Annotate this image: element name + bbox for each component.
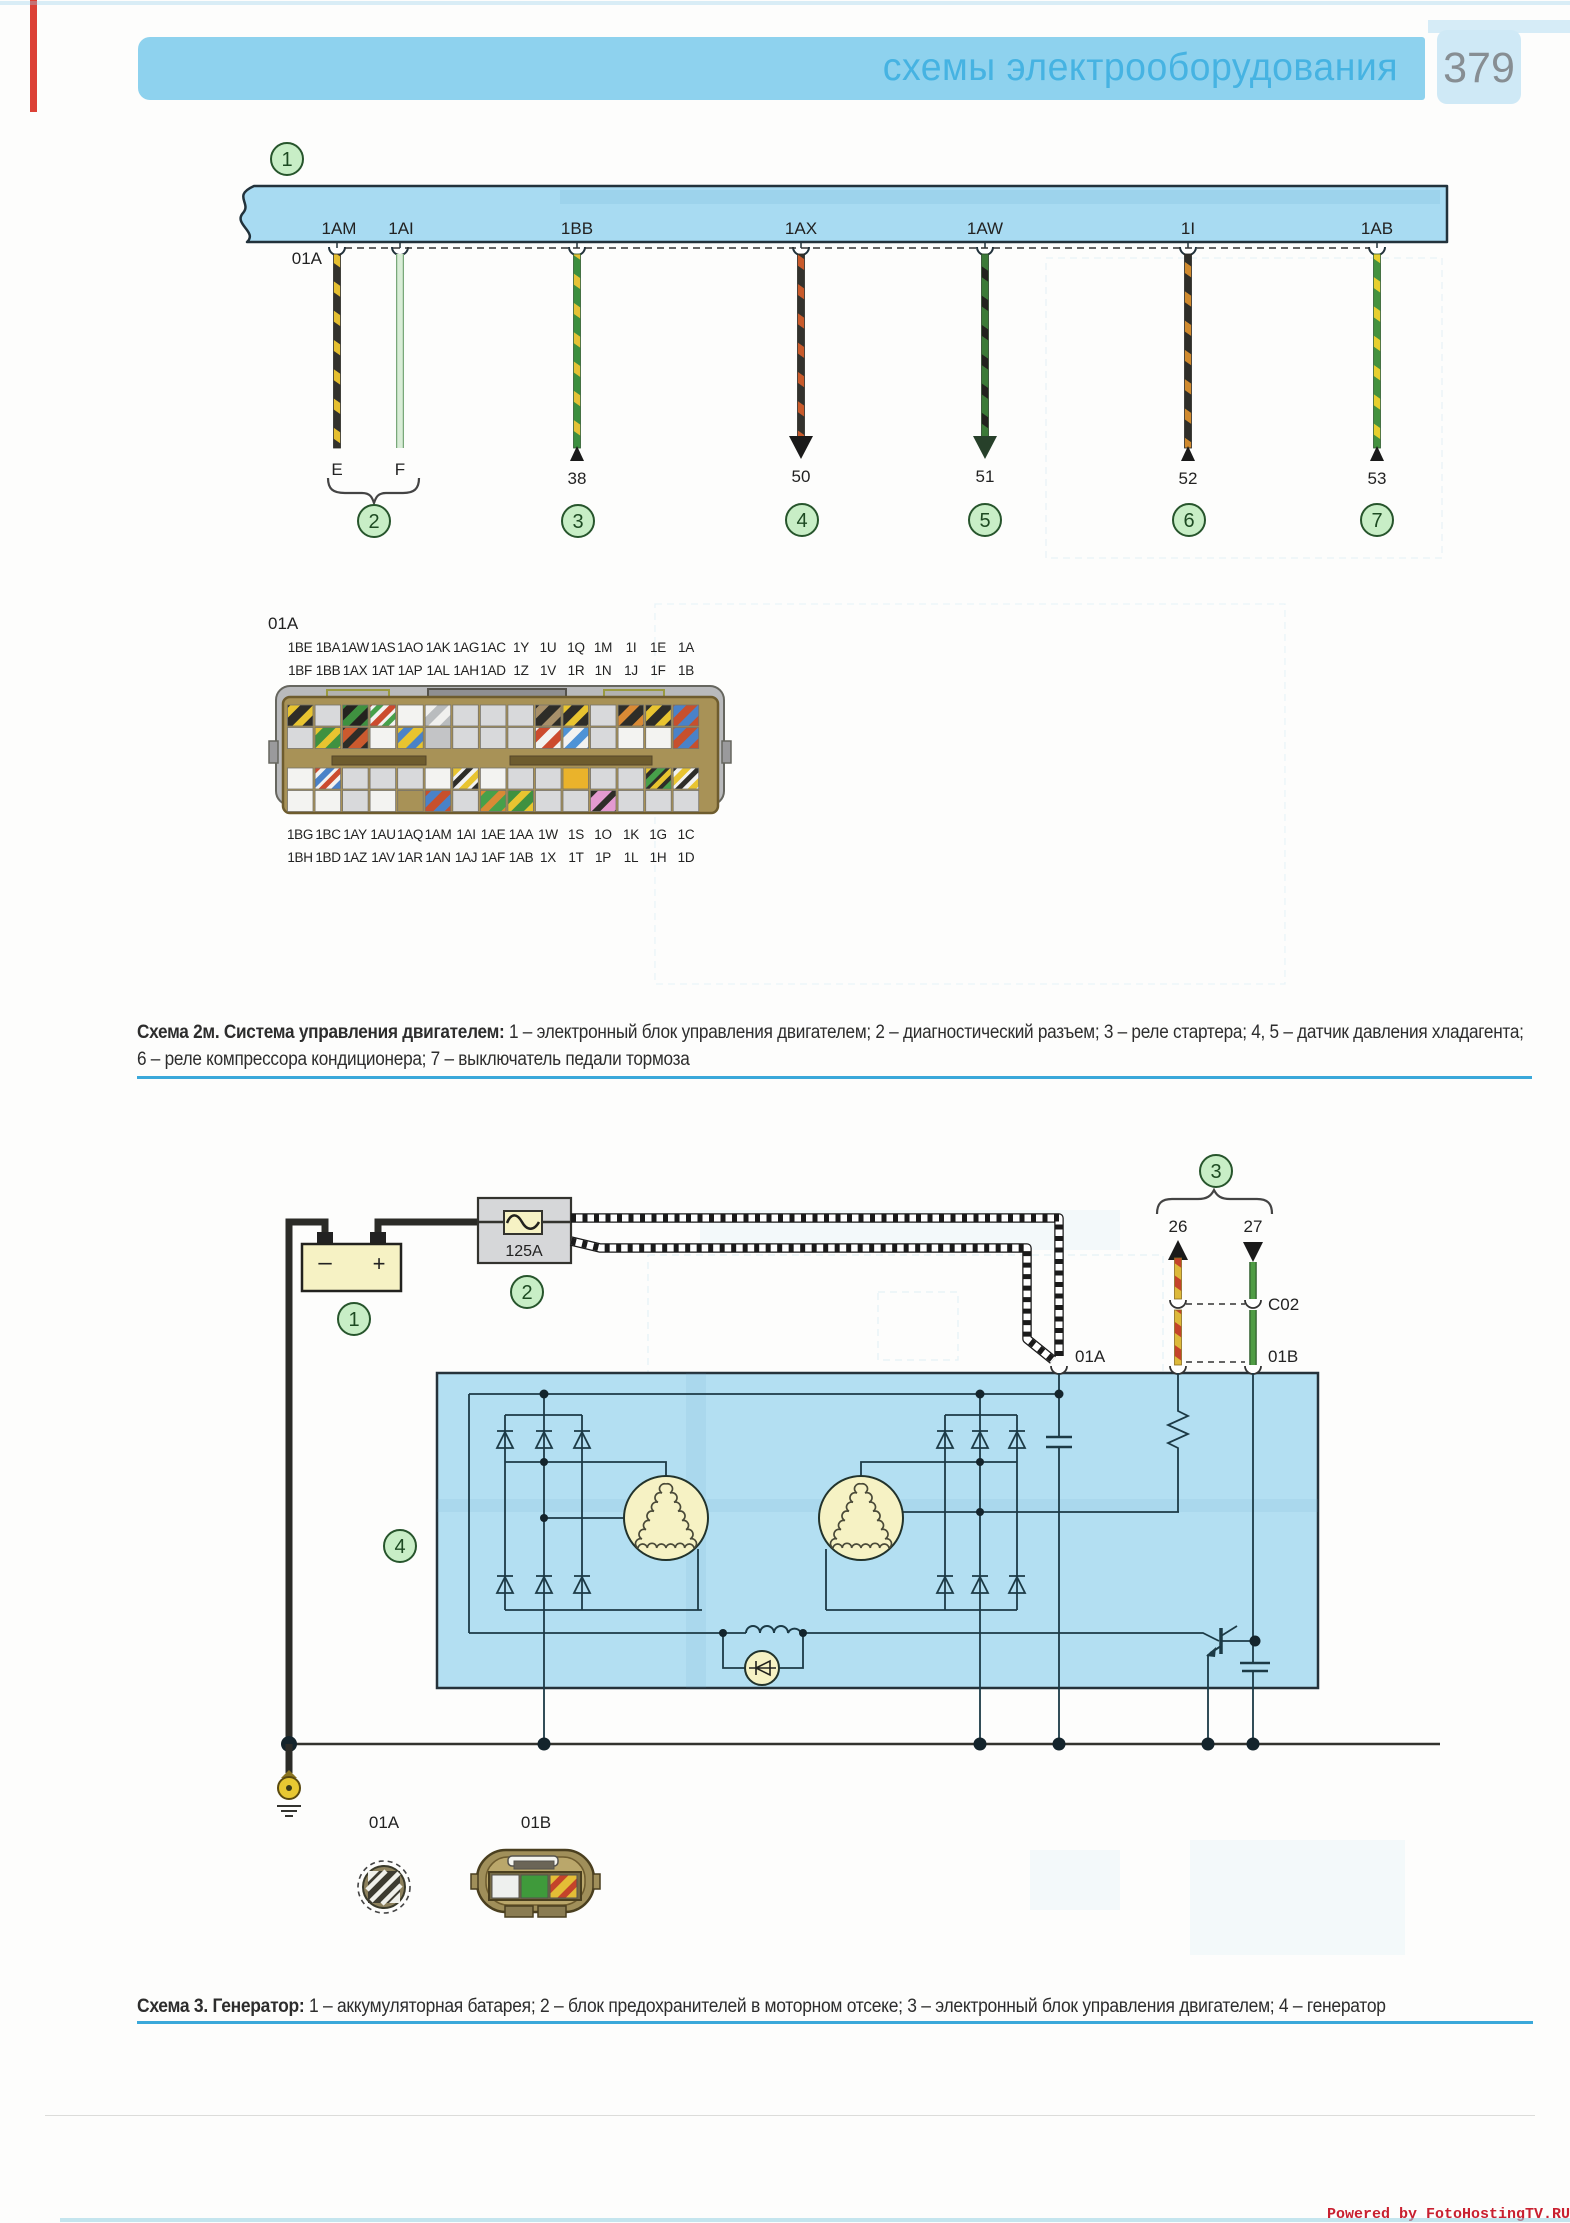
svg-text:1BG: 1BG (287, 827, 313, 842)
svg-text:1AX: 1AX (343, 663, 368, 678)
svg-text:1BH: 1BH (287, 850, 312, 865)
svg-text:C02: C02 (1268, 1295, 1299, 1314)
svg-text:1AW: 1AW (341, 640, 369, 655)
svg-text:1U: 1U (540, 640, 557, 655)
svg-text:1A: 1A (678, 640, 694, 655)
svg-text:1W: 1W (538, 827, 558, 842)
svg-text:01A: 01A (369, 1813, 400, 1832)
svg-text:1AM: 1AM (322, 219, 357, 238)
svg-text:1AH: 1AH (453, 663, 478, 678)
svg-text:1AL: 1AL (426, 663, 450, 678)
svg-text:1AO: 1AO (397, 640, 423, 655)
svg-text:1BD: 1BD (315, 850, 341, 865)
svg-text:1I: 1I (1181, 219, 1195, 238)
svg-text:53: 53 (1368, 469, 1387, 488)
svg-text:1AZ: 1AZ (343, 850, 367, 865)
svg-text:1AE: 1AE (481, 827, 506, 842)
svg-text:38: 38 (568, 469, 587, 488)
svg-text:125A: 125A (505, 1243, 543, 1260)
svg-text:1AV: 1AV (371, 850, 395, 865)
svg-text:1T: 1T (568, 850, 583, 865)
svg-text:E: E (331, 460, 342, 479)
svg-text:1AW: 1AW (967, 219, 1003, 238)
svg-text:1V: 1V (540, 663, 556, 678)
svg-text:1BA: 1BA (316, 640, 341, 655)
svg-text:1AA: 1AA (509, 827, 534, 842)
svg-text:52: 52 (1179, 469, 1198, 488)
svg-text:1AD: 1AD (480, 663, 506, 678)
svg-text:26: 26 (1169, 1217, 1188, 1236)
svg-text:1B: 1B (678, 663, 694, 678)
svg-text:1Y: 1Y (513, 640, 529, 655)
svg-text:01A: 01A (292, 249, 323, 268)
svg-text:1L: 1L (624, 850, 639, 865)
svg-text:1BB: 1BB (316, 663, 341, 678)
svg-text:1J: 1J (624, 663, 638, 678)
svg-text:1AS: 1AS (371, 640, 396, 655)
svg-text:4: 4 (796, 510, 807, 532)
svg-text:6: 6 (1183, 510, 1194, 532)
svg-text:1X: 1X (540, 850, 556, 865)
svg-text:1F: 1F (650, 663, 665, 678)
svg-text:1AG: 1AG (453, 640, 479, 655)
svg-text:1AT: 1AT (372, 663, 395, 678)
svg-text:F: F (395, 460, 405, 479)
svg-text:1AC: 1AC (480, 640, 506, 655)
svg-text:1BF: 1BF (288, 663, 312, 678)
svg-text:1Q: 1Q (567, 640, 584, 655)
svg-text:1AP: 1AP (398, 663, 423, 678)
svg-text:50: 50 (792, 467, 811, 486)
svg-text:1O: 1O (594, 827, 611, 842)
svg-text:7: 7 (1371, 510, 1382, 532)
svg-text:+: + (373, 1251, 386, 1276)
svg-text:1AK: 1AK (426, 640, 451, 655)
svg-text:51: 51 (976, 467, 995, 486)
svg-text:1BE: 1BE (288, 640, 313, 655)
svg-text:27: 27 (1244, 1217, 1263, 1236)
svg-text:1G: 1G (649, 827, 666, 842)
svg-text:1AU: 1AU (370, 827, 395, 842)
svg-text:1S: 1S (568, 827, 584, 842)
svg-text:1AR: 1AR (397, 850, 423, 865)
svg-text:1M: 1M (594, 640, 612, 655)
svg-text:1AF: 1AF (481, 850, 505, 865)
svg-text:1: 1 (348, 1309, 359, 1331)
svg-text:3: 3 (572, 511, 583, 533)
svg-text:1P: 1P (595, 850, 611, 865)
svg-text:4: 4 (394, 1536, 405, 1558)
svg-text:1Z: 1Z (513, 663, 528, 678)
svg-text:2: 2 (368, 511, 379, 533)
svg-text:1H: 1H (650, 850, 667, 865)
svg-text:1AB: 1AB (1361, 219, 1393, 238)
svg-text:1N: 1N (595, 663, 612, 678)
svg-text:1AJ: 1AJ (455, 850, 477, 865)
svg-text:1AX: 1AX (785, 219, 817, 238)
svg-text:3: 3 (1210, 1161, 1221, 1183)
svg-text:1: 1 (281, 149, 292, 171)
svg-text:01A: 01A (268, 614, 299, 633)
svg-text:1D: 1D (678, 850, 695, 865)
svg-text:01B: 01B (1268, 1347, 1298, 1366)
svg-text:5: 5 (979, 510, 990, 532)
svg-text:1C: 1C (678, 827, 695, 842)
svg-text:1AB: 1AB (509, 850, 534, 865)
svg-text:1AM: 1AM (425, 827, 452, 842)
svg-text:1I: 1I (626, 640, 637, 655)
svg-text:1AQ: 1AQ (397, 827, 423, 842)
svg-text:1R: 1R (568, 663, 585, 678)
svg-text:1BC: 1BC (315, 827, 341, 842)
svg-text:1K: 1K (623, 827, 639, 842)
svg-text:1AY: 1AY (343, 827, 367, 842)
svg-text:1E: 1E (650, 640, 666, 655)
svg-text:2: 2 (521, 1282, 532, 1304)
svg-text:1AI: 1AI (456, 827, 475, 842)
svg-text:01A: 01A (1075, 1347, 1106, 1366)
svg-text:1BB: 1BB (561, 219, 593, 238)
svg-text:01B: 01B (521, 1813, 551, 1832)
svg-text:1AI: 1AI (388, 219, 414, 238)
svg-text:1AN: 1AN (425, 850, 450, 865)
svg-text:–: – (318, 1249, 332, 1276)
